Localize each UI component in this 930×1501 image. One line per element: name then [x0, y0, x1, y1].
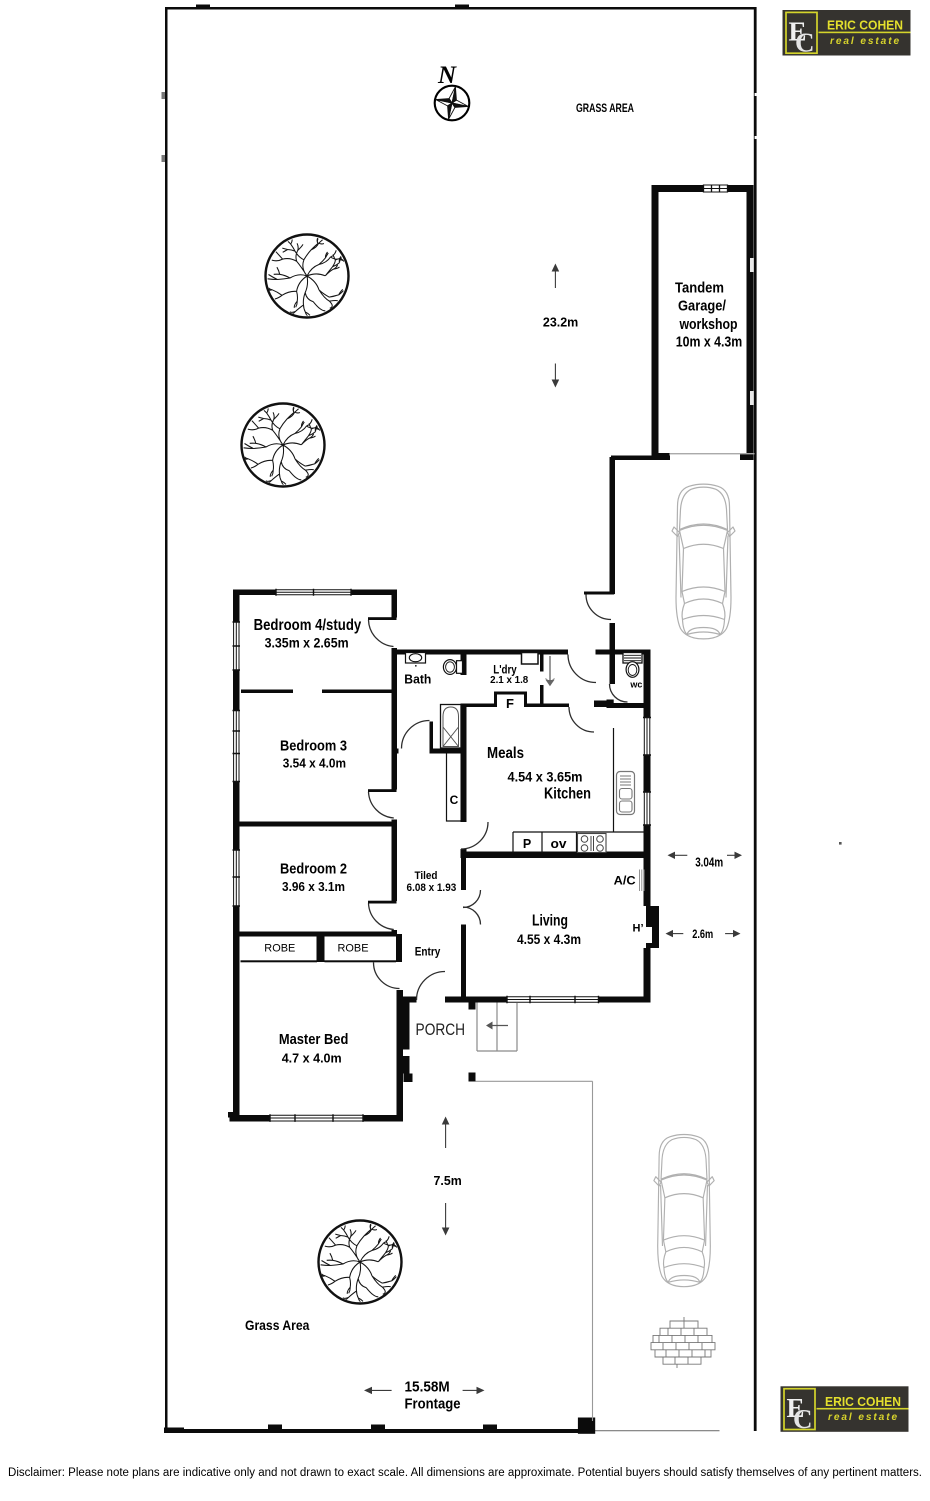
svg-text:10m x 4.3m: 10m x 4.3m — [676, 335, 743, 351]
svg-text:Bedroom 2: Bedroom 2 — [280, 860, 347, 877]
svg-text:H’: H’ — [633, 923, 644, 935]
svg-text:A/C: A/C — [614, 874, 636, 888]
svg-text:wc: wc — [629, 680, 642, 690]
svg-text:4.7 x 4.0m: 4.7 x 4.0m — [282, 1051, 342, 1066]
svg-text:Frontage: Frontage — [405, 1397, 461, 1413]
svg-text:7.5m: 7.5m — [434, 1174, 462, 1188]
svg-text:Entry: Entry — [415, 945, 441, 959]
svg-text:Meals: Meals — [487, 745, 524, 762]
svg-text:Bath: Bath — [404, 672, 431, 686]
svg-text:workshop: workshop — [679, 317, 738, 333]
svg-text:PORCH: PORCH — [416, 1021, 466, 1039]
svg-text:Tandem: Tandem — [675, 281, 724, 297]
svg-text:Bedroom 3: Bedroom 3 — [280, 738, 347, 755]
svg-text:ROBE: ROBE — [338, 943, 369, 955]
svg-text:Living: Living — [532, 912, 568, 929]
svg-text:Disclaimer: Please note plans: Disclaimer: Please note plans are indica… — [8, 1467, 922, 1479]
svg-text:F: F — [506, 696, 514, 711]
svg-text:ROBE: ROBE — [264, 943, 295, 955]
svg-text:3.54 x 4.0m: 3.54 x 4.0m — [283, 756, 346, 771]
svg-text:Garage/: Garage/ — [678, 299, 726, 315]
svg-text:2.6m: 2.6m — [692, 927, 713, 941]
svg-text:15.58M: 15.58M — [405, 1380, 450, 1396]
svg-text:23.2m: 23.2m — [543, 316, 578, 330]
svg-text:P: P — [523, 837, 531, 851]
svg-text:2.1 x 1.8: 2.1 x 1.8 — [490, 675, 528, 686]
svg-text:Bedroom 4/study: Bedroom 4/study — [254, 617, 362, 634]
svg-text:3.96 x 3.1m: 3.96 x 3.1m — [282, 879, 345, 894]
svg-text:Grass Area: Grass Area — [245, 1318, 310, 1333]
svg-text:Kitchen: Kitchen — [544, 786, 591, 803]
svg-text:4.55 x 4.3m: 4.55 x 4.3m — [517, 932, 581, 947]
svg-text:ov: ov — [551, 837, 567, 851]
svg-text:6.08 x 1.93: 6.08 x 1.93 — [407, 882, 457, 894]
svg-text:4.54 x 3.65m: 4.54 x 3.65m — [508, 770, 583, 785]
svg-text:GRASS AREA: GRASS AREA — [576, 101, 634, 115]
svg-text:3.35m x 2.65m: 3.35m x 2.65m — [265, 635, 349, 650]
svg-text:Master Bed: Master Bed — [279, 1031, 349, 1048]
svg-text:3.04m: 3.04m — [695, 855, 723, 869]
svg-text:Tiled: Tiled — [415, 870, 438, 882]
svg-text:C: C — [450, 793, 459, 807]
